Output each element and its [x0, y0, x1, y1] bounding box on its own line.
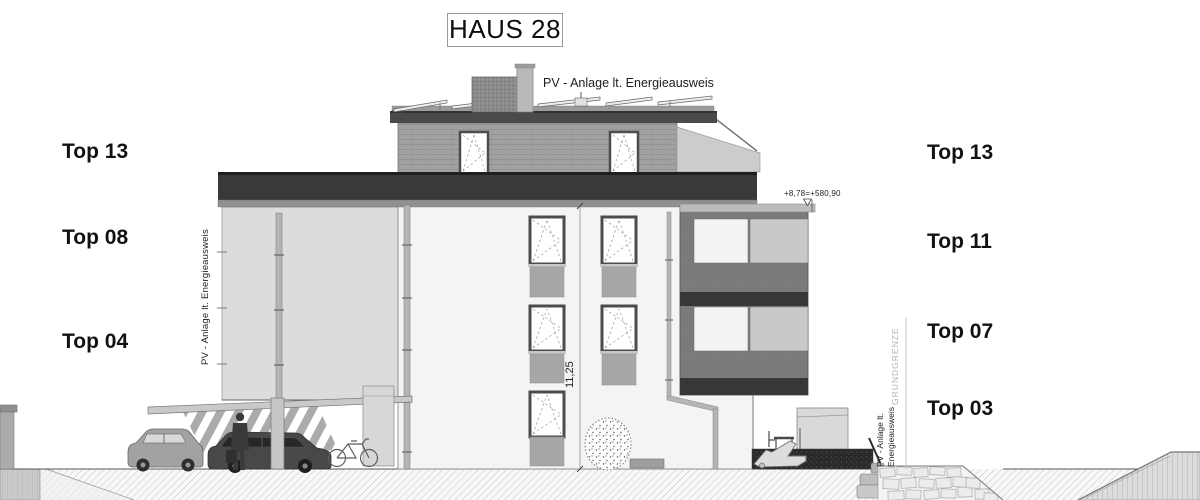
unit-label-left-top08: Top 08	[62, 226, 128, 250]
unit-label-left-top04: Top 04	[62, 330, 128, 354]
unit-label-right-top07: Top 07	[927, 320, 993, 344]
unit-label-right-top13: Top 13	[927, 141, 993, 165]
bench	[630, 459, 664, 468]
left-wing-wall	[217, 207, 398, 400]
chimney	[472, 64, 535, 112]
drawing-svg	[0, 0, 1200, 500]
carport-post	[271, 398, 284, 469]
penthouse-window	[610, 132, 638, 174]
height-dimension: 11,25	[564, 352, 576, 388]
roof-slab	[390, 111, 717, 123]
pv-right-vertical-label-line2: Energieausweis	[886, 403, 896, 467]
stair-enclosure	[677, 127, 760, 172]
grundgrenze-label: GRUNDGRENZE	[890, 327, 900, 405]
unit-label-left-top13: Top 13	[62, 140, 128, 164]
pv-roof-label: PV - Anlage lt. Energieausweis	[543, 76, 714, 90]
gate-pillar	[0, 405, 17, 469]
elevation-marker-text: +8,78=+580,90	[784, 189, 841, 198]
car-light	[128, 429, 203, 472]
elevation-drawing: HAUS 28 PV - Anlage lt. Energieausweis T…	[0, 0, 1200, 500]
pv-right-vertical-label-line1: PV - Anlage lt.	[875, 401, 885, 467]
penthouse-window	[460, 132, 488, 174]
drawing-title: HAUS 28	[447, 13, 563, 47]
bush	[585, 418, 631, 470]
parapet-band	[218, 172, 757, 207]
unit-label-right-top11: Top 11	[927, 230, 992, 254]
pv-left-vertical-label: PV - Anlage lt. Energieausweis	[200, 231, 211, 365]
ground-hatch	[0, 469, 1200, 500]
unit-label-right-top03: Top 03	[927, 397, 993, 421]
